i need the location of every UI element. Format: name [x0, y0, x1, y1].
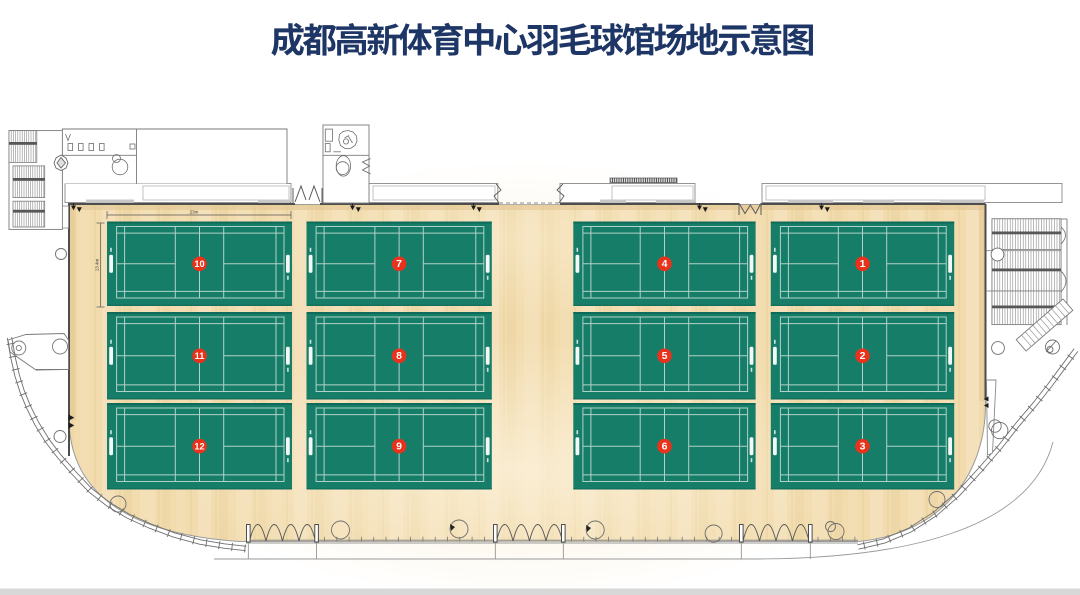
svg-text:11: 11	[195, 351, 205, 361]
svg-text:13.4m: 13.4m	[95, 258, 100, 271]
svg-text:12: 12	[194, 442, 204, 452]
svg-text:5: 5	[662, 350, 668, 362]
svg-text:8: 8	[396, 350, 402, 362]
svg-text:4: 4	[662, 258, 668, 270]
svg-text:23m: 23m	[190, 210, 199, 215]
svg-text:2: 2	[860, 350, 866, 362]
svg-text:6: 6	[662, 441, 668, 453]
svg-text:3: 3	[860, 441, 866, 453]
svg-text:10: 10	[194, 259, 204, 269]
svg-text:9: 9	[396, 441, 402, 453]
svg-text:1: 1	[860, 258, 866, 270]
svg-text:7: 7	[396, 258, 402, 270]
